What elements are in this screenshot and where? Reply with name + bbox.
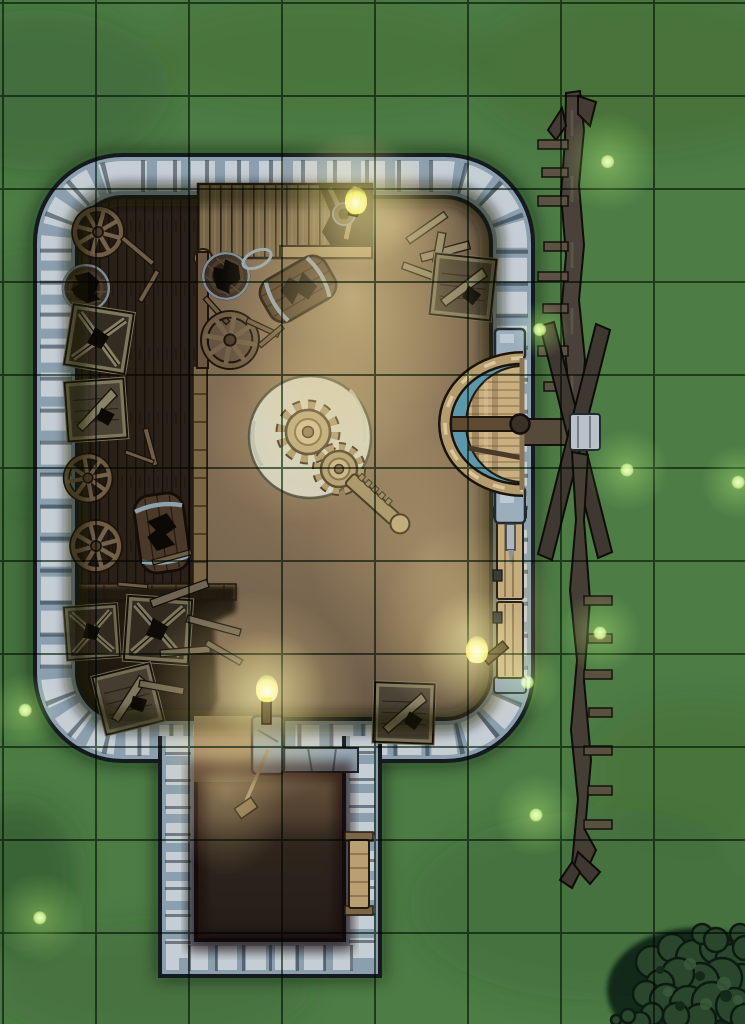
door-hinge	[493, 612, 502, 623]
axle-collar	[570, 414, 600, 450]
map-svg	[0, 0, 745, 1024]
torch-handle	[262, 698, 271, 724]
battle-map	[0, 0, 745, 1024]
wheel-hub	[511, 415, 530, 434]
door-hinge	[493, 570, 502, 581]
annex-door	[345, 832, 373, 915]
wheel-brake-rod	[506, 524, 515, 550]
floor-trim-beam-vertical	[193, 366, 207, 602]
